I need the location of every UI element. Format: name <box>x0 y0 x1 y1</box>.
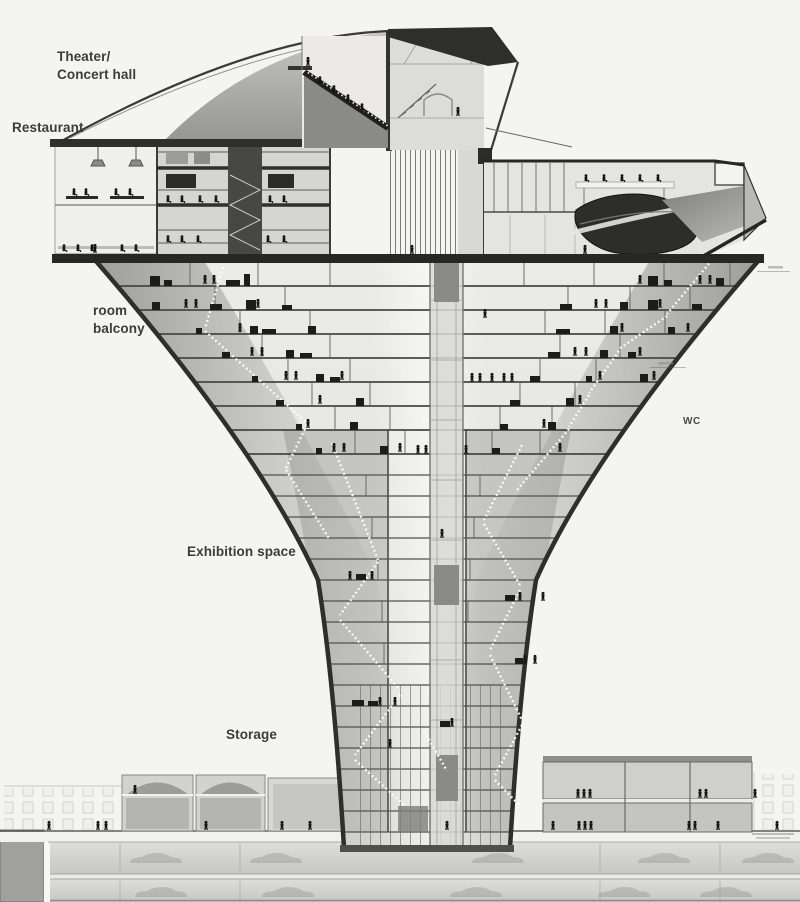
elevator-car <box>434 565 459 605</box>
annex-building <box>543 756 752 832</box>
label-theater: Theater/ Concert hall <box>57 48 136 83</box>
gallery-bar <box>576 182 674 188</box>
wing-end-box <box>715 163 744 185</box>
vaulted-pavilions <box>122 775 350 831</box>
bookshelf <box>268 174 294 188</box>
label-storage: Storage <box>226 726 277 744</box>
label-wc: WC <box>683 413 701 431</box>
foundation <box>340 845 514 852</box>
right-wing <box>484 161 766 258</box>
label-theater-line2: Concert hall <box>57 66 136 84</box>
bookshelf <box>166 174 196 188</box>
elevator-car <box>434 262 459 302</box>
theater-hall <box>288 31 392 151</box>
louver-wall <box>390 150 458 255</box>
elevator-car <box>436 755 458 801</box>
label-room-balcony: room balcony <box>93 302 145 337</box>
elevator-shaft <box>430 258 463 848</box>
label-theater-line1: Theater/ <box>57 48 136 66</box>
vault-1 <box>122 775 193 831</box>
stair-shaft <box>228 147 262 255</box>
label-balcony-line1: room <box>93 302 145 320</box>
label-exhibition: Exhibition space <box>187 543 296 561</box>
label-restaurant: Restaurant <box>12 119 84 137</box>
section-drawing-page: Theater/ Concert hall Restaurant room ba… <box>0 0 800 902</box>
building-section-svg <box>0 0 800 902</box>
head <box>50 27 766 263</box>
stem-entrance <box>398 806 428 832</box>
label-balcony-line2: balcony <box>93 320 145 338</box>
head-base-band <box>52 254 764 263</box>
